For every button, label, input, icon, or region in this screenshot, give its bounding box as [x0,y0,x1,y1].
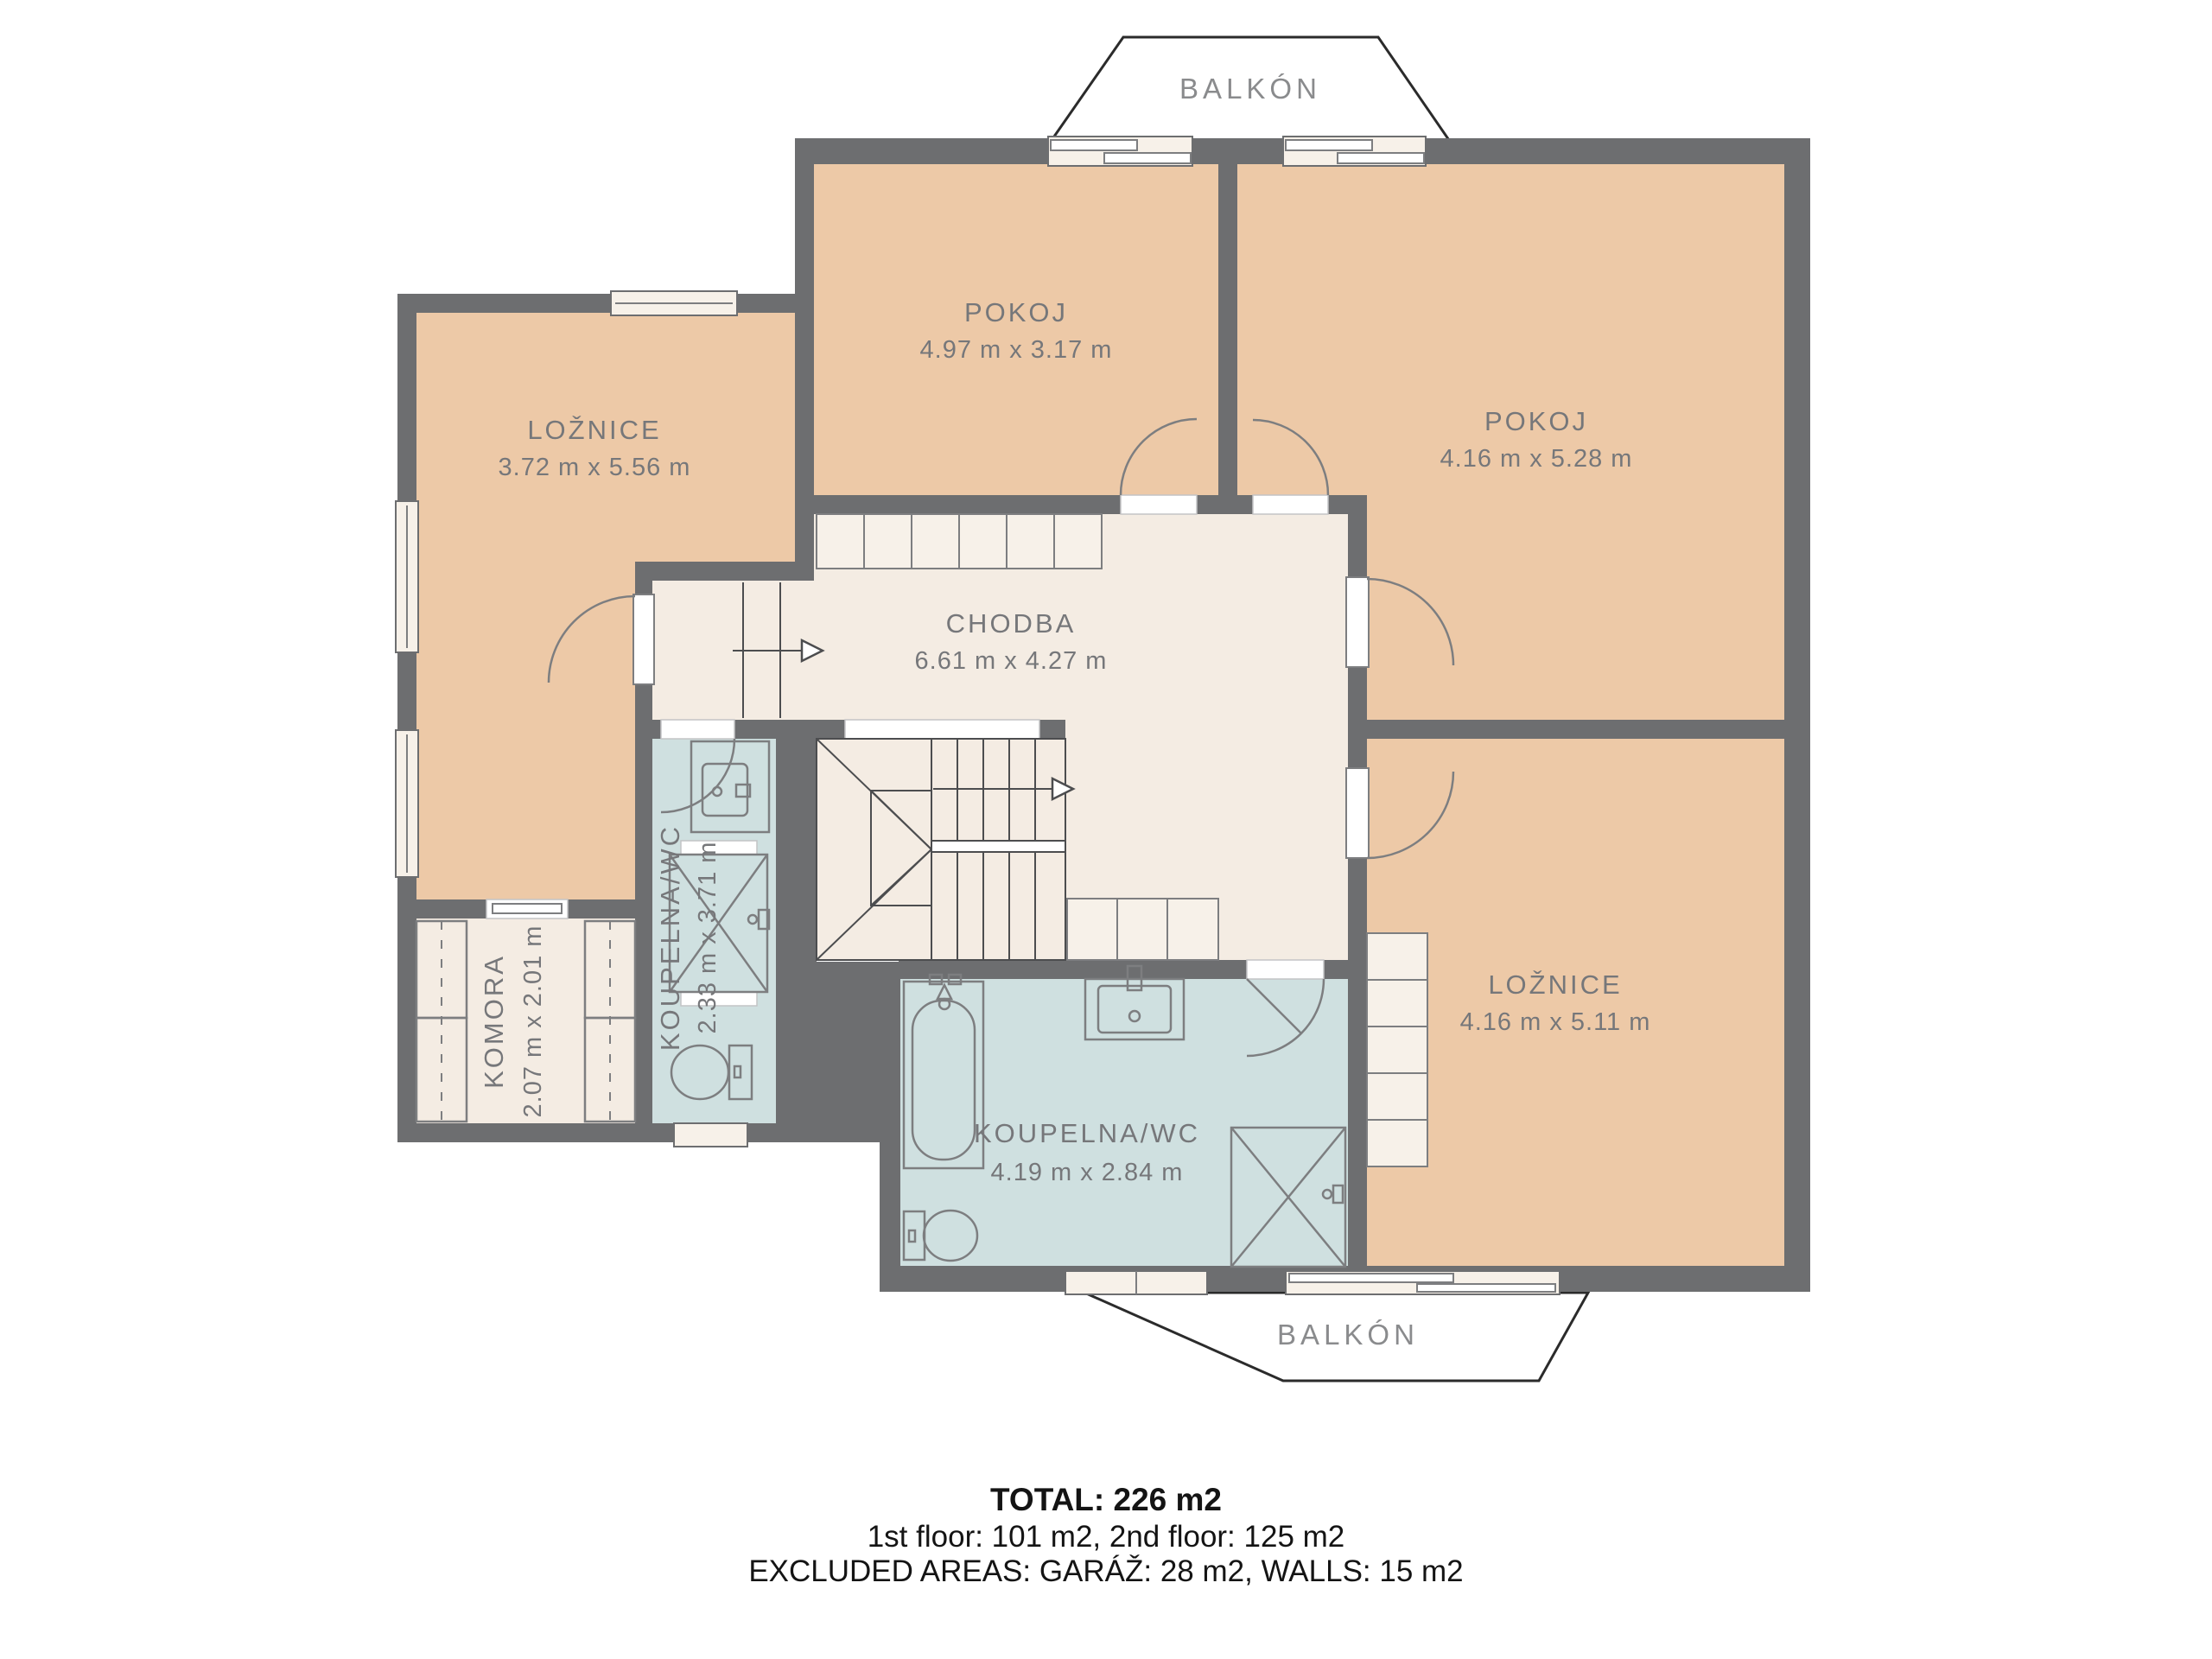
window-koupelna-left-bottom [674,1123,747,1147]
label-loznice-right: LOŽNICE [1488,969,1622,1000]
wall-loznice-top [397,294,814,313]
window-pane [1289,1274,1453,1282]
opening-stairs [845,720,1039,739]
komora-sliding-door [493,904,562,913]
chodba-closet-bottom [1067,899,1218,960]
window-pane [1051,140,1137,150]
wall-landing-top [635,562,814,581]
label-balcony-bottom: BALKÓN [1277,1319,1419,1351]
dims-loznice-right: 4.16 m x 5.11 m [1460,1008,1651,1036]
footer-excluded: EXCLUDED AREAS: GARÁŽ: 28 m2, WALLS: 15 … [748,1554,1463,1588]
room-pokoj-top [814,164,1218,497]
wall-mass-lower [776,962,900,1142]
wall-step-top [795,138,814,581]
room-loznice-left-lower [416,562,635,899]
label-komora: KOMORA [479,954,509,1089]
room-pokoj-right-lower [1367,497,1784,720]
dims-chodba: 6.61 m x 4.27 m [915,647,1108,675]
opening-pokoj-top-door [1121,495,1197,514]
wall-stairs-edge-left [817,720,845,739]
wall-exterior-left [397,294,416,1142]
label-loznice-left: LOŽNICE [527,415,661,445]
wall-pokoj-divider [1218,138,1237,514]
dims-koupelna-left: 2.33 m x 3.71 m [694,842,721,1034]
window-pane [1417,1284,1555,1292]
floorplan: POKOJ 4.97 m x 3.17 m POKOJ 4.16 m x 5.2… [0,0,2212,1659]
stairs-rail [931,841,1065,852]
wall-mass-upper [776,720,817,962]
label-balcony-top: BALKÓN [1179,73,1321,105]
opening-koupelna-bottom-door [1247,960,1324,979]
door-leaf-loznice-left [633,594,654,684]
footer-summary: TOTAL: 226 m2 1st floor: 101 m2, 2nd flo… [748,1482,1463,1588]
label-koupelna-left: KOUPELNA/WC [655,824,685,1051]
label-pokoj-right: POKOJ [1484,406,1588,436]
label-koupelna-bottom: KOUPELNA/WC [974,1118,1200,1148]
wall-right-rooms-divider [1348,720,1784,739]
room-loznice-right [1367,739,1784,1266]
footer-floors: 1st floor: 101 m2, 2nd floor: 125 m2 [868,1520,1345,1554]
room-fills [416,164,1784,1266]
wall-exterior-right [1784,138,1810,1292]
opening-pokoj-right-door2 [1253,495,1328,514]
dims-koupelna-bottom: 4.19 m x 2.84 m [991,1159,1184,1186]
dims-pokoj-right: 4.16 m x 5.28 m [1440,445,1633,473]
window-pane [1104,153,1191,163]
dims-pokoj-top: 4.97 m x 3.17 m [920,336,1113,364]
wall-stairs-edge-right [1039,720,1065,739]
loznice-right-wardrobe [1367,933,1427,1166]
dims-komora: 2.07 m x 2.01 m [519,925,547,1118]
footer-total: TOTAL: 226 m2 [990,1482,1222,1517]
window-pane [1338,153,1424,163]
opening-koupelna-left-door [661,720,734,739]
label-pokoj-top: POKOJ [964,297,1068,327]
dims-loznice-left: 3.72 m x 5.56 m [499,454,691,481]
window-pane [1286,140,1372,150]
label-chodba: CHODBA [946,608,1077,639]
door-leaf-loznice-right [1346,768,1369,858]
wall-exterior-step [880,1125,900,1292]
door-leaf-pokoj-right [1346,577,1369,667]
